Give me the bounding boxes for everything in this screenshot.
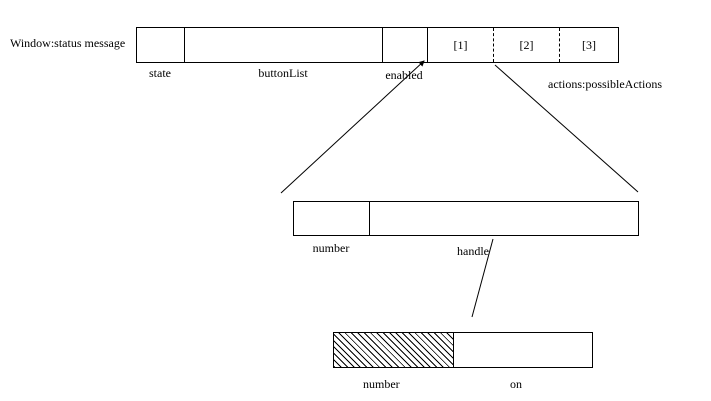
window-object-title: Window:status message <box>10 37 125 50</box>
buttonlist-label: buttonList <box>184 67 382 80</box>
enabled-label: enabled <box>378 69 430 82</box>
on-slot <box>454 333 592 367</box>
buttonlist-slot <box>185 28 383 62</box>
actions-label: actions:possibleActions <box>548 78 662 91</box>
bottom-number-slot-hatched <box>334 333 454 367</box>
actions-slot-2: [2] <box>494 28 560 62</box>
on-label: on <box>510 378 522 391</box>
window-object-box: [1] [2] [3] <box>136 27 619 63</box>
number-label: number <box>293 242 369 255</box>
bottom-object-box <box>333 332 593 368</box>
object-diagram: Window:status message [1] [2] [3] state … <box>0 0 711 401</box>
bottom-number-label: number <box>363 378 400 391</box>
enabled-slot <box>383 28 428 62</box>
handle-slot <box>370 202 638 235</box>
actions-slot-1: [1] <box>428 28 494 62</box>
state-slot <box>137 28 185 62</box>
middle-object-box <box>293 201 639 236</box>
handle-label: handle <box>457 245 489 258</box>
actions-slot-3: [3] <box>560 28 618 62</box>
state-label: state <box>136 67 184 80</box>
number-slot <box>294 202 370 235</box>
